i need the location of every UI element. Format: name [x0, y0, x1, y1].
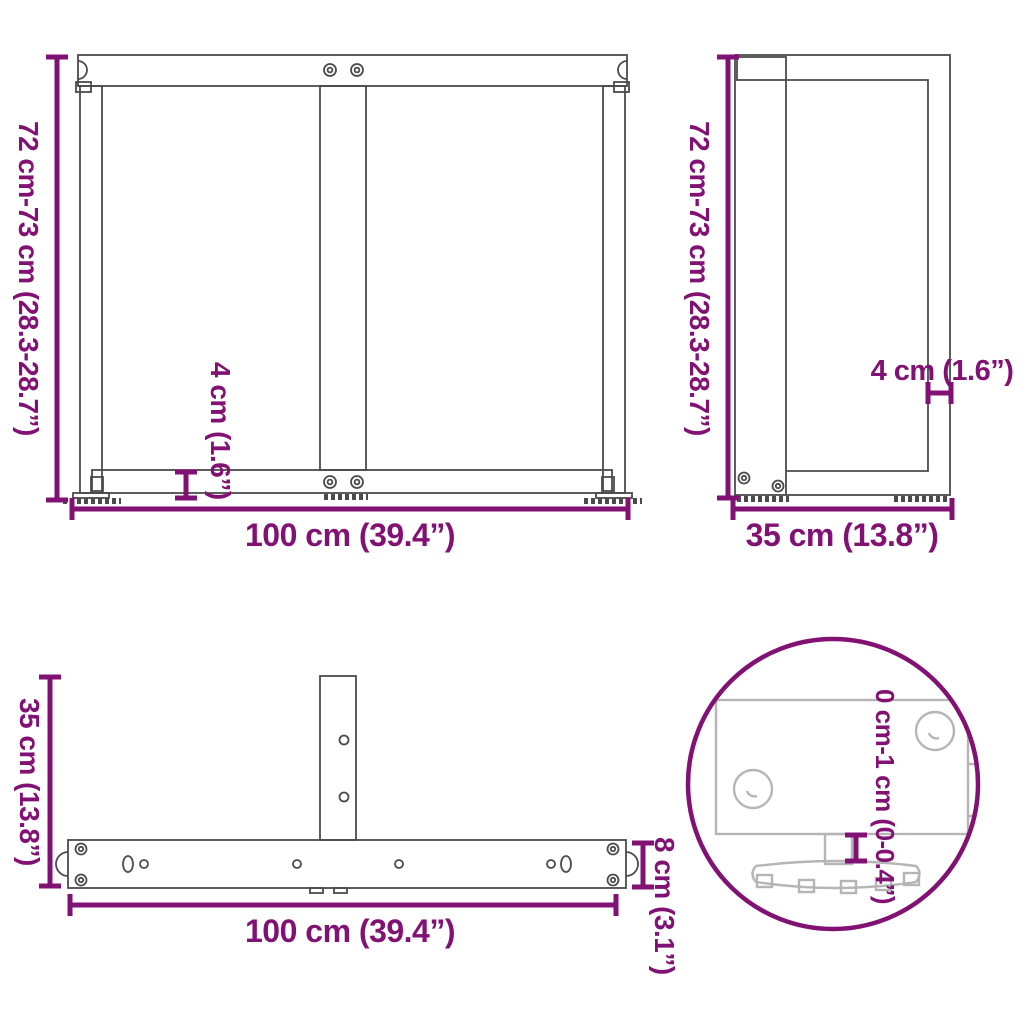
- top-view-drawing: [56, 676, 638, 893]
- foot-adjustable-range-label: 0 cm-1 cm (0-0.4”): [869, 665, 901, 927]
- side-view-drawing: [735, 55, 950, 499]
- front-bottom-bar-thickness-label: 4 cm (1.6”): [202, 350, 238, 512]
- front-view-drawing: [63, 55, 642, 501]
- top-view-dimensions: [39, 677, 654, 916]
- front-view-dimensions: [46, 57, 628, 520]
- top-bar-height-label: 8 cm (3.1”): [647, 822, 681, 990]
- top-width-dimension-label: 100 cm (39.4”): [150, 915, 550, 947]
- front-height-dimension-label: 72 cm-73 cm (28.3-28.7”): [10, 57, 46, 500]
- side-view-dimensions: [717, 57, 952, 520]
- foot-detail-drawing: [716, 700, 984, 893]
- top-depth-dimension-label: 35 cm (13.8”): [12, 662, 46, 902]
- front-width-dimension-label: 100 cm (39.4”): [150, 519, 550, 551]
- magnifier-circle: [688, 639, 978, 929]
- adjustable-feet: [63, 497, 642, 501]
- side-depth-dimension-label: 35 cm (13.8”): [722, 519, 962, 551]
- side-height-dimension-label: 72 cm-73 cm (28.3-28.7”): [681, 57, 717, 500]
- foot-detail-dimensions: [845, 835, 867, 861]
- side-bar-thickness-label: 4 cm (1.6”): [852, 357, 1024, 386]
- dimension-diagram-canvas: 72 cm-73 cm (28.3-28.7”) 4 cm (1.6”) 100…: [0, 0, 1024, 1024]
